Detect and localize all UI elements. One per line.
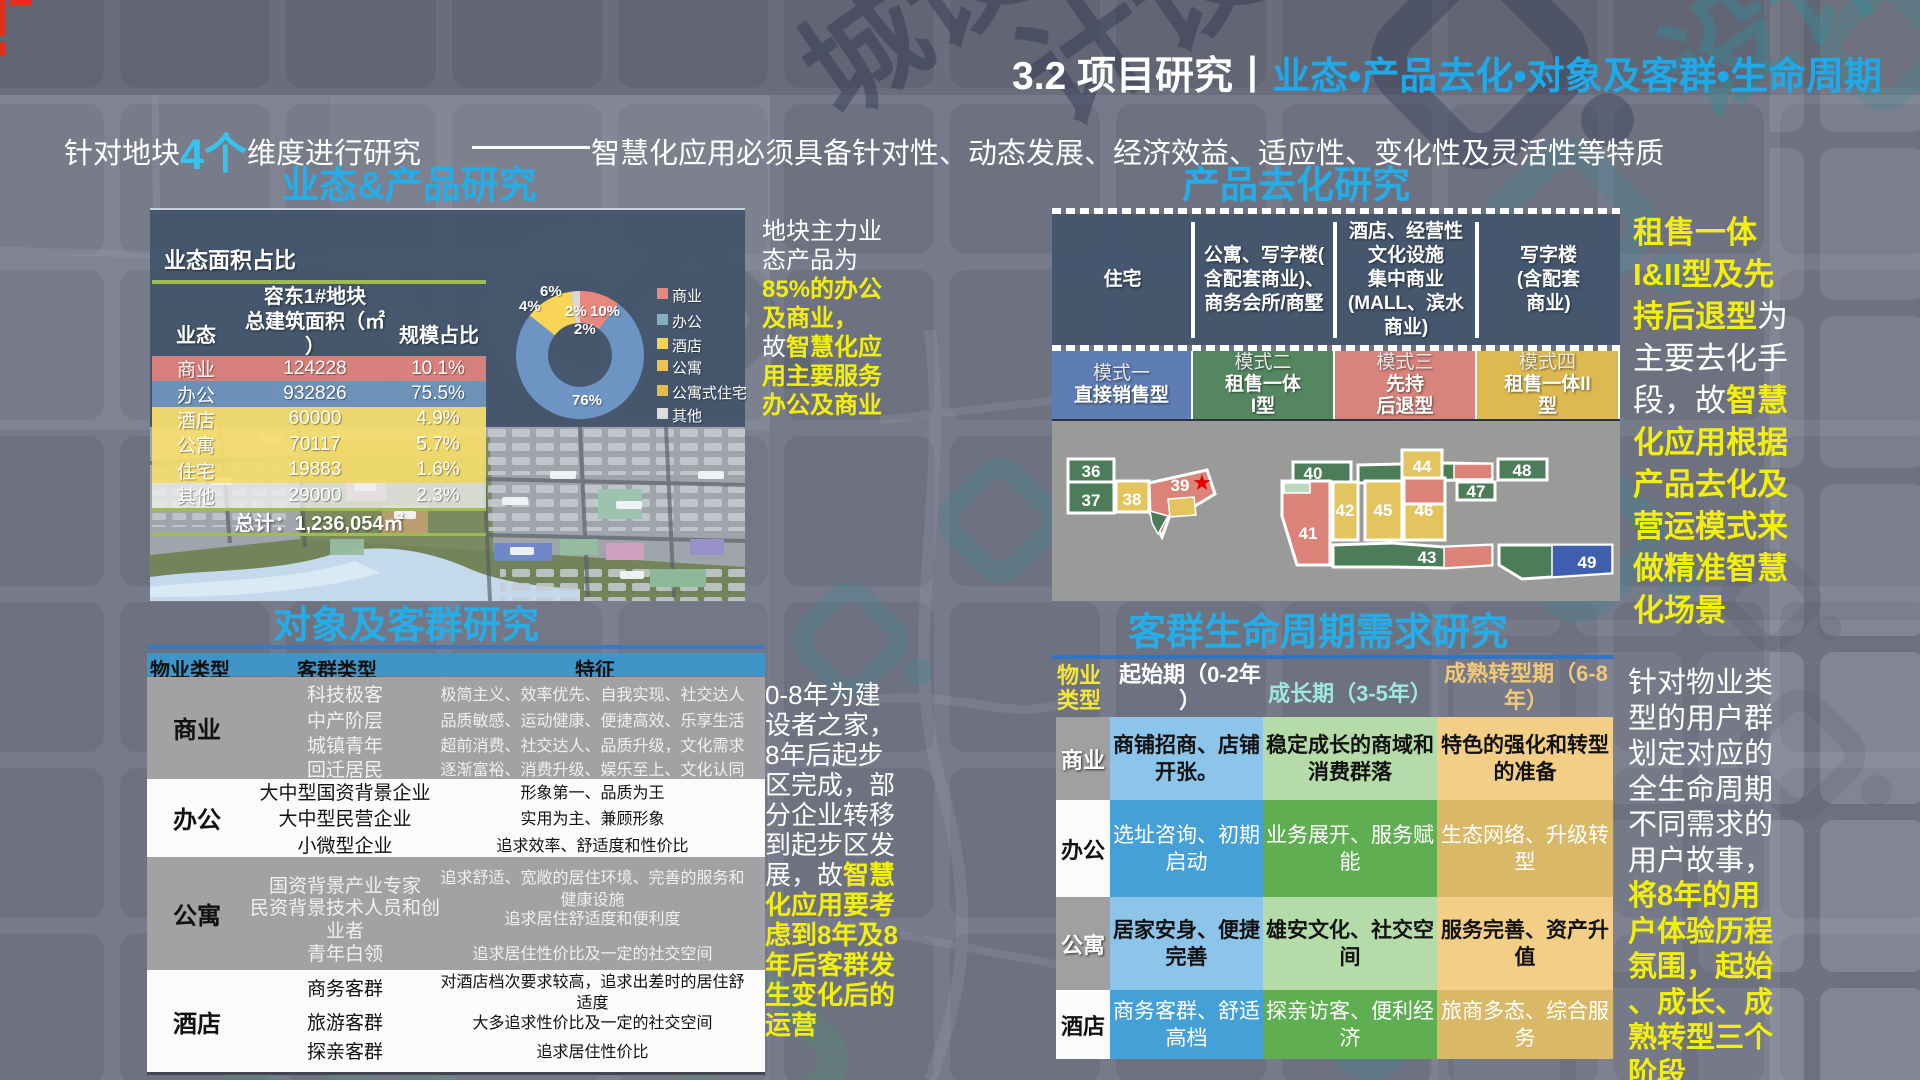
svg-text:37: 37 [1082, 491, 1101, 510]
svg-text:46: 46 [1415, 501, 1434, 520]
svg-text:44: 44 [1413, 457, 1432, 476]
svg-text:48: 48 [1513, 461, 1532, 480]
svg-text:42: 42 [1336, 501, 1355, 520]
svg-text:41: 41 [1299, 524, 1318, 543]
svg-text:43: 43 [1418, 548, 1437, 567]
svg-text:36: 36 [1082, 462, 1101, 481]
svg-text:49: 49 [1578, 553, 1597, 572]
svg-text:45: 45 [1374, 501, 1393, 520]
svg-text:39: 39 [1171, 476, 1190, 495]
svg-text:38: 38 [1123, 490, 1142, 509]
svg-text:★: ★ [1193, 473, 1210, 494]
svg-text:47: 47 [1467, 482, 1486, 501]
